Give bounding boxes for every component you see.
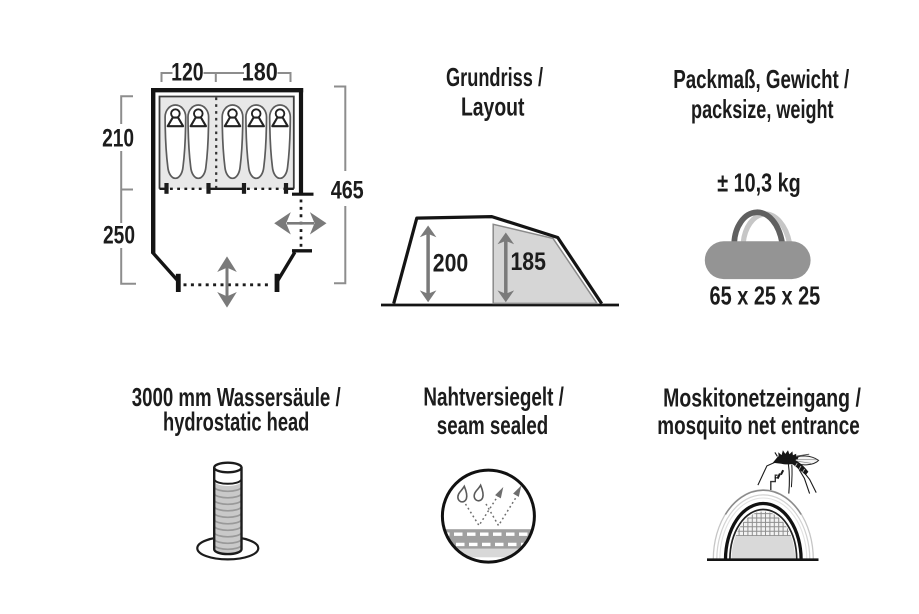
svg-text:180: 180 xyxy=(242,59,278,87)
svg-text:65 x 25 x 25: 65 x 25 x 25 xyxy=(710,281,821,311)
svg-text:200: 200 xyxy=(433,249,469,277)
svg-text:250: 250 xyxy=(103,221,135,249)
svg-text:210: 210 xyxy=(102,125,134,153)
svg-text:packsize, weight: packsize, weight xyxy=(691,94,834,124)
svg-text:seam sealed: seam sealed xyxy=(437,410,548,440)
svg-text:Packmaß, Gewicht /: Packmaß, Gewicht / xyxy=(673,64,849,94)
svg-text:120: 120 xyxy=(171,59,204,87)
svg-text:± 10,3 kg: ± 10,3 kg xyxy=(717,167,800,197)
svg-text:hydrostatic head: hydrostatic head xyxy=(163,407,309,437)
svg-text:Grundriss /: Grundriss / xyxy=(446,62,543,92)
svg-text:465: 465 xyxy=(331,176,364,204)
svg-text:Layout: Layout xyxy=(461,92,525,122)
svg-text:Moskitonetzeingang /: Moskitonetzeingang / xyxy=(663,383,861,413)
svg-text:185: 185 xyxy=(510,248,546,276)
svg-text:mosquito net entrance: mosquito net entrance xyxy=(657,410,859,440)
svg-text:Nahtversiegelt /: Nahtversiegelt / xyxy=(423,382,564,412)
